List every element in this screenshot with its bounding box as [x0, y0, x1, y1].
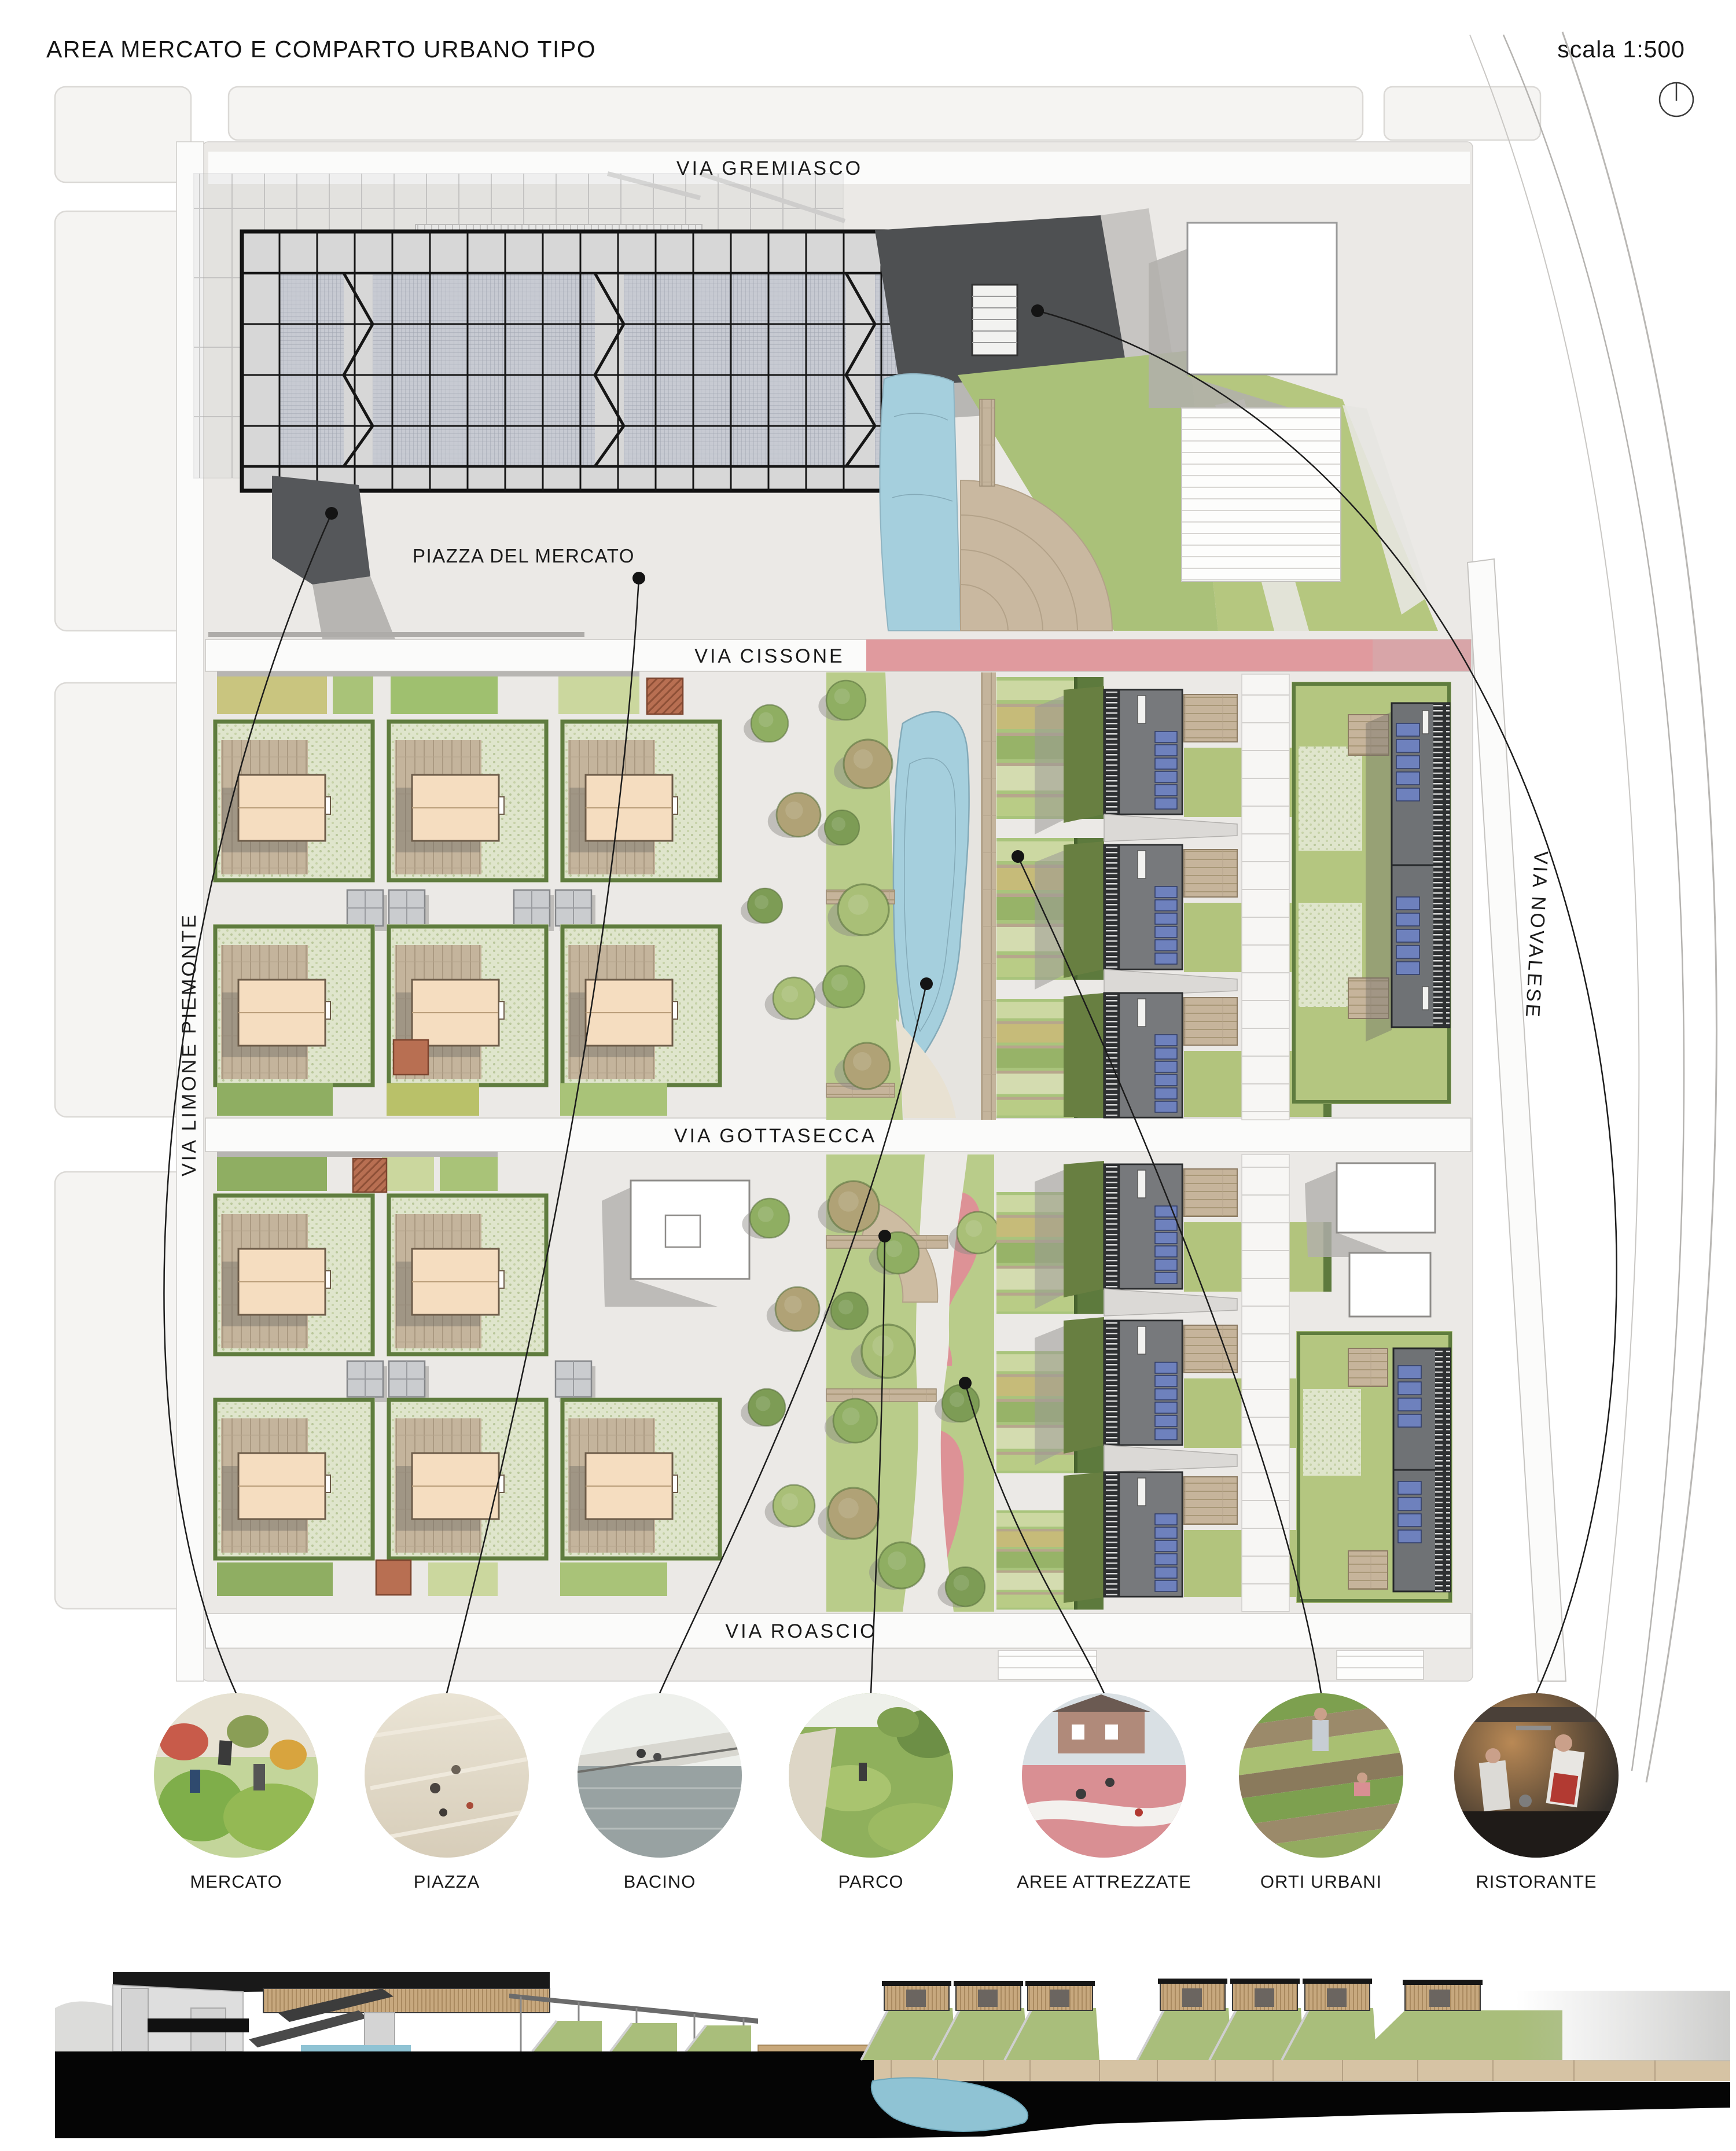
- hatched-lot: [1182, 408, 1341, 582]
- right-cluster-b: [1296, 1163, 1452, 1603]
- legend-label-mercato: MERCATO: [190, 1871, 282, 1892]
- legend: MERCATO PIAZZA BACINO PARCO AREE ATTREZZ…: [154, 1676, 1619, 1892]
- terracotta-shed: [376, 1560, 411, 1595]
- legend-label-piazza: PIAZZA: [414, 1871, 480, 1892]
- section-mist-trees: [1516, 1991, 1730, 2061]
- courtyard-parcel: [560, 924, 722, 1087]
- street-novalese: [1467, 559, 1566, 1681]
- north-indicator-icon: [1660, 83, 1693, 116]
- right-cluster-a: [1292, 682, 1451, 1104]
- street-label-roascio: VIA ROASCIO: [725, 1620, 877, 1642]
- street-label-gremiasco: VIA GREMIASCO: [676, 157, 863, 179]
- courtyard-parcel: [387, 1193, 549, 1356]
- legend-photo-bacino: [578, 1693, 742, 1859]
- section-hills: [55, 2001, 122, 2051]
- legend-photo-aree-attrezzate: [1022, 1693, 1186, 1858]
- section-drawing: [55, 1972, 1730, 2138]
- section-row-houses: [861, 1979, 1562, 2060]
- courtyard-parcel: [213, 1193, 375, 1356]
- courtyard-parcel: [560, 719, 722, 883]
- garden-shed: [347, 1361, 387, 1402]
- courtyard-parcel: [387, 719, 549, 883]
- courtyard-parcel: [213, 924, 375, 1087]
- legend-photo-orti-urbani: [1210, 1676, 1436, 1885]
- street-label-novalese: VIA NOVALESE: [1521, 851, 1552, 1020]
- courtyard-parcel: [213, 719, 375, 883]
- superblock-b: [213, 1152, 1452, 1612]
- section-deck-band: [874, 2060, 1730, 2081]
- legend-label-ristorante: RISTORANTE: [1476, 1871, 1597, 1892]
- legend-label-bacino: BACINO: [624, 1871, 696, 1892]
- park-strip-a: [815, 672, 996, 1120]
- garden-shed: [389, 1361, 429, 1402]
- park-strip-b: [818, 1154, 999, 1612]
- parking-strip-b: [1242, 1154, 1289, 1612]
- legend-label-parco: PARCO: [838, 1871, 904, 1892]
- courtyard-parcel: [213, 1398, 375, 1561]
- presentation-board: AREA MERCATO E COMPARTO URBANO TIPO scal…: [0, 0, 1736, 2151]
- courtyard-parcel: [560, 1398, 722, 1561]
- boardwalk: [981, 672, 996, 1120]
- street-label-limone: VIA LIMONE PIEMONTE: [178, 913, 200, 1176]
- legend-photo-piazza: [365, 1693, 529, 1858]
- legend-photo-mercato: [154, 1693, 321, 1858]
- section-pool: [301, 2045, 411, 2052]
- parking-strip-a: [1242, 674, 1289, 1120]
- terracotta-shed: [393, 1040, 428, 1075]
- garden-shed: [556, 1361, 595, 1402]
- street-label-gottasecca: VIA GOTTASECCA: [674, 1125, 877, 1147]
- legend-photo-parco: [789, 1693, 961, 1858]
- street-label-cissone: VIA CISSONE: [694, 645, 844, 667]
- masterplan-drawing: VIA GREMIASCO PIAZZA DEL MERCATO VIA CIS…: [0, 0, 1736, 2151]
- lawn-strips-top: [217, 671, 683, 714]
- legend-label-orti-urbani: ORTI URBANI: [1260, 1871, 1382, 1892]
- area-label-piazza: PIAZZA DEL MERCATO: [413, 545, 635, 567]
- terracotta-shed: [647, 678, 683, 714]
- glass-grid-roof: [242, 231, 928, 491]
- terracotta-shed: [353, 1159, 387, 1192]
- legend-photo-ristorante: [1454, 1693, 1619, 1858]
- legend-label-aree-attrezzate: AREE ATTREZZATE: [1017, 1871, 1191, 1892]
- courtyard-parcel: [387, 1398, 549, 1561]
- section-ground-left: [55, 2051, 874, 2138]
- piazza-del-mercato: [208, 632, 584, 637]
- superblock-a: [213, 671, 1451, 1120]
- lawn-strips-bottom-b: [217, 1560, 667, 1596]
